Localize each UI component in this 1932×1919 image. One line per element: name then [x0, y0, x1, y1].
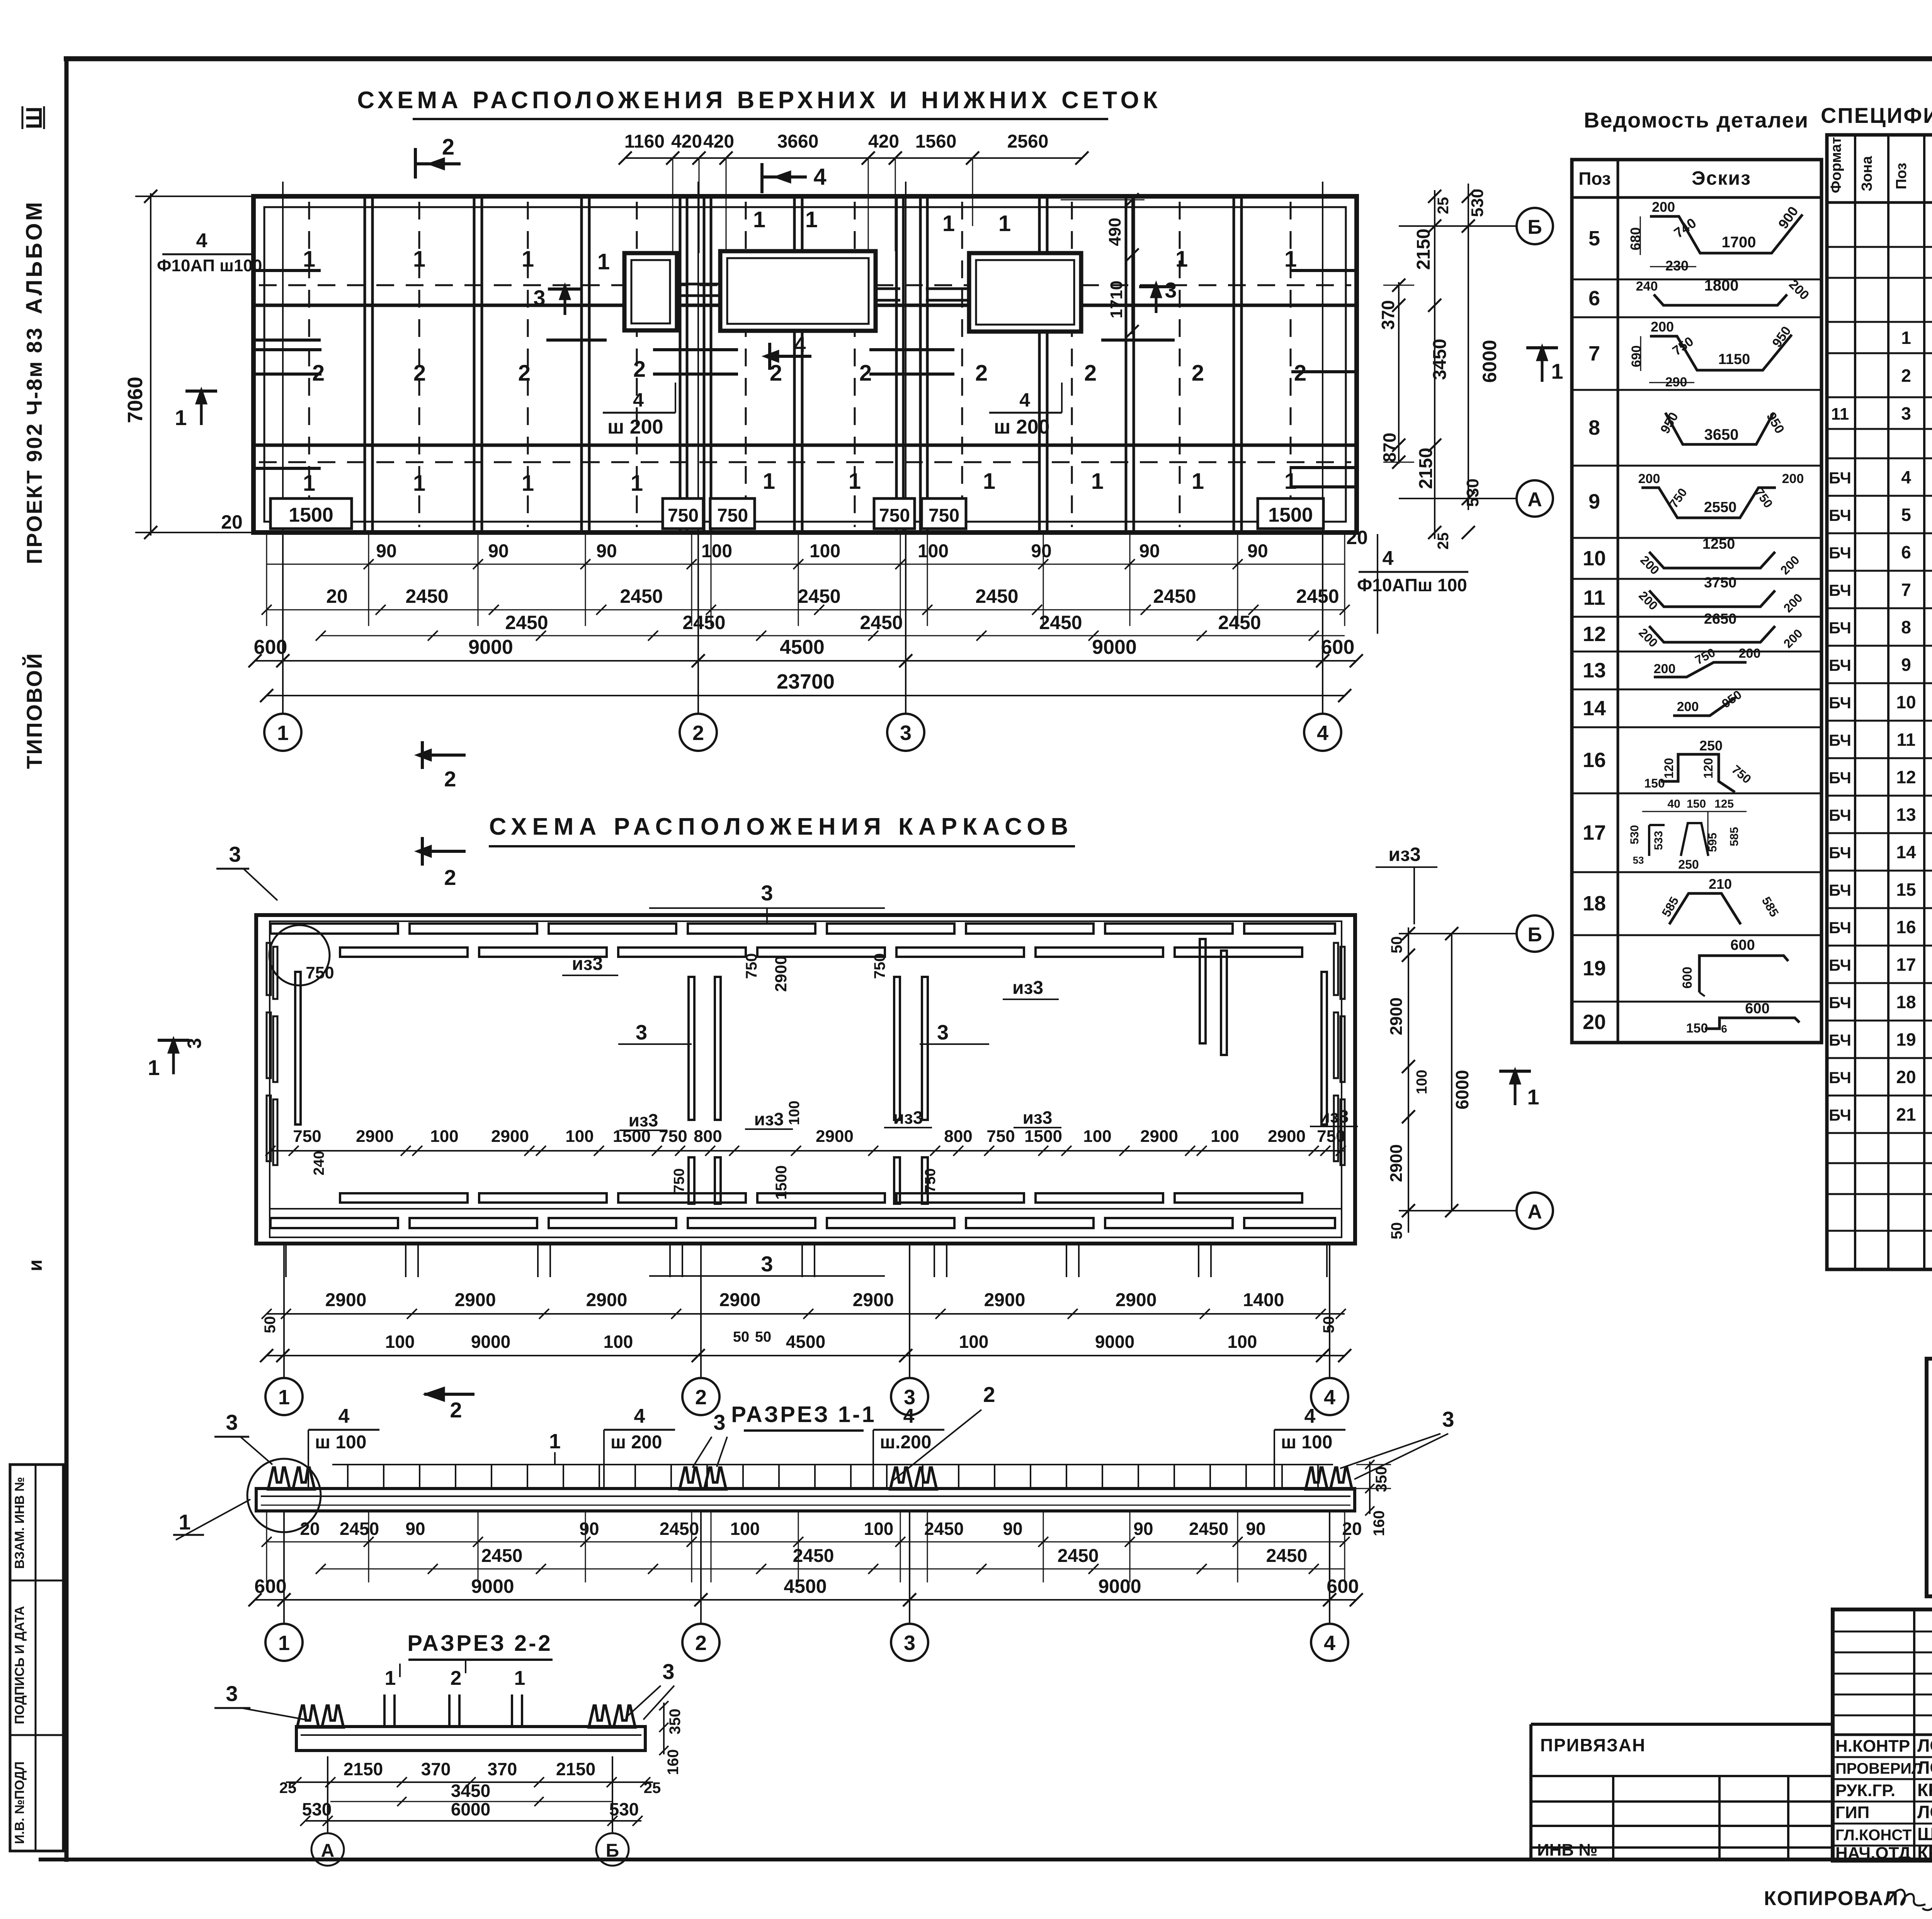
svg-text:1150: 1150 [1718, 351, 1750, 367]
svg-text:90: 90 [488, 541, 509, 561]
svg-text:370: 370 [1378, 300, 1398, 330]
svg-text:2900: 2900 [356, 1127, 394, 1146]
svg-text:2: 2 [1192, 361, 1204, 386]
svg-text:НАЧ.ОТД: НАЧ.ОТД [1835, 1844, 1911, 1863]
svg-text:3: 3 [900, 721, 912, 745]
svg-text:10: 10 [1896, 692, 1916, 712]
svg-text:16: 16 [1583, 749, 1606, 772]
svg-text:Б: Б [606, 1841, 619, 1861]
svg-text:ГИП: ГИП [1835, 1803, 1869, 1822]
svg-text:17: 17 [1896, 954, 1916, 975]
svg-text:90: 90 [405, 1519, 425, 1539]
svg-text:100: 100 [565, 1127, 594, 1146]
svg-text:2900: 2900 [1387, 1144, 1406, 1182]
svg-text:2: 2 [450, 1398, 462, 1422]
svg-text:25: 25 [644, 1779, 661, 1797]
svg-text:90: 90 [376, 541, 396, 561]
svg-text:23700: 23700 [777, 670, 835, 693]
svg-text:870: 870 [1379, 433, 1400, 463]
svg-text:490: 490 [1105, 218, 1124, 246]
svg-text:4: 4 [1383, 547, 1394, 570]
svg-text:1500: 1500 [1024, 1127, 1062, 1146]
svg-text:1: 1 [277, 721, 289, 745]
svg-text:1: 1 [763, 469, 775, 494]
svg-text:Ф10АΠш 100: Ф10АΠш 100 [1357, 575, 1467, 595]
svg-text:1: 1 [1175, 247, 1188, 272]
svg-text:3: 3 [1442, 1407, 1454, 1431]
svg-text:750: 750 [671, 1168, 687, 1193]
svg-text:800: 800 [694, 1127, 722, 1146]
svg-text:ЛОУЦКЕР: ЛОУЦКЕР [1917, 1735, 1932, 1756]
svg-text:ТИПОВОЙ: ТИПОВОЙ [22, 652, 46, 769]
svg-text:2900: 2900 [816, 1127, 854, 1146]
svg-text:1: 1 [148, 1055, 160, 1080]
svg-text:50: 50 [262, 1316, 279, 1334]
svg-text:750: 750 [929, 505, 959, 526]
svg-text:1: 1 [413, 247, 425, 272]
svg-text:2: 2 [451, 1667, 462, 1689]
svg-text:680: 680 [1628, 227, 1643, 250]
svg-text:600: 600 [1745, 1000, 1769, 1017]
svg-text:2450: 2450 [340, 1519, 379, 1539]
svg-text:150: 150 [1644, 776, 1665, 790]
svg-text:СХЕМА РАСПОЛОЖЕНИЯ КАРКАСОВ: СХЕМА РАСПОЛОЖЕНИЯ КАРКАСОВ [489, 813, 1074, 840]
svg-text:100: 100 [604, 1332, 633, 1352]
svg-text:420: 420 [868, 131, 899, 152]
svg-text:БЧ: БЧ [1829, 506, 1851, 524]
svg-text:4: 4 [1019, 389, 1030, 411]
svg-text:3: 3 [761, 881, 773, 905]
svg-text:2560: 2560 [1007, 131, 1049, 152]
svg-text:600: 600 [254, 1575, 286, 1597]
svg-text:2900: 2900 [984, 1290, 1026, 1310]
svg-text:1500: 1500 [773, 1165, 790, 1200]
svg-text:14: 14 [1896, 842, 1916, 862]
svg-text:200: 200 [1739, 646, 1761, 661]
svg-text:1: 1 [1901, 328, 1911, 348]
svg-text:11: 11 [1583, 586, 1605, 609]
svg-text:420: 420 [671, 131, 702, 152]
svg-text:КРАСАВИН: КРАСАВИН [1917, 1842, 1932, 1863]
svg-text:13: 13 [1896, 805, 1916, 825]
svg-text:2900: 2900 [455, 1290, 496, 1310]
svg-text:90: 90 [579, 1519, 599, 1539]
svg-text:Эскиз: Эскиз [1692, 167, 1751, 189]
svg-text:БЧ: БЧ [1829, 1106, 1851, 1124]
svg-text:из3: из3 [1388, 844, 1420, 865]
svg-text:750: 750 [871, 953, 888, 979]
svg-text:2900: 2900 [853, 1290, 894, 1310]
svg-text:ВЗАМ. ИНВ №: ВЗАМ. ИНВ № [12, 1477, 27, 1569]
svg-text:5: 5 [1588, 227, 1600, 250]
svg-text:125: 125 [1714, 798, 1734, 810]
svg-text:2900: 2900 [491, 1127, 529, 1146]
svg-text:БЧ: БЧ [1829, 581, 1851, 599]
svg-text:Формат: Формат [1828, 137, 1844, 193]
svg-text:ИНВ №: ИНВ № [1537, 1841, 1597, 1859]
svg-text:1: 1 [514, 1667, 526, 1689]
svg-text:530: 530 [1463, 478, 1482, 507]
svg-text:200: 200 [1651, 319, 1674, 335]
svg-text:14: 14 [1583, 697, 1606, 720]
svg-text:600: 600 [1680, 967, 1695, 989]
svg-text:600: 600 [254, 636, 287, 658]
svg-text:А: А [1527, 1201, 1542, 1223]
svg-text:3: 3 [713, 1410, 725, 1434]
svg-text:А: А [1527, 488, 1542, 511]
svg-text:5: 5 [1901, 505, 1911, 525]
svg-text:50: 50 [733, 1329, 749, 1345]
svg-text:1: 1 [983, 469, 995, 494]
svg-text:4500: 4500 [780, 636, 825, 658]
svg-text:12: 12 [1583, 623, 1606, 646]
svg-text:750: 750 [922, 1168, 939, 1193]
svg-text:100: 100 [786, 1101, 803, 1125]
svg-text:2: 2 [633, 357, 646, 382]
svg-text:533: 533 [1652, 831, 1665, 850]
svg-text:Б: Б [1527, 924, 1542, 946]
svg-text:1710: 1710 [1107, 281, 1126, 318]
svg-text:2450: 2450 [793, 1546, 834, 1566]
svg-text:БЧ: БЧ [1829, 994, 1851, 1012]
svg-text:ш 200: ш 200 [607, 416, 663, 438]
svg-text:370: 370 [421, 1759, 451, 1779]
svg-text:из3: из3 [754, 1109, 784, 1129]
svg-text:ш 100: ш 100 [315, 1432, 366, 1453]
svg-text:2450: 2450 [1058, 1546, 1099, 1566]
svg-text:1: 1 [385, 1667, 396, 1689]
svg-text:1160: 1160 [624, 131, 665, 152]
svg-text:2: 2 [695, 1631, 707, 1655]
svg-text:3: 3 [533, 286, 545, 310]
svg-text:ПРОВЕРИЛ: ПРОВЕРИЛ [1835, 1760, 1922, 1777]
svg-text:9000: 9000 [1098, 1575, 1141, 1597]
svg-text:Ф10АΠ ш100: Ф10АΠ ш100 [157, 256, 262, 275]
svg-text:Зона: Зона [1859, 156, 1875, 191]
svg-text:2150: 2150 [1413, 229, 1434, 270]
svg-text:2: 2 [442, 134, 454, 160]
svg-text:БЧ: БЧ [1829, 656, 1851, 674]
svg-text:18: 18 [1583, 892, 1606, 915]
svg-text:750: 750 [668, 505, 699, 526]
svg-text:420: 420 [703, 131, 734, 152]
svg-text:БЧ: БЧ [1829, 844, 1851, 862]
svg-text:750: 750 [743, 953, 760, 979]
svg-text:БЧ: БЧ [1829, 806, 1851, 824]
svg-text:3: 3 [904, 1631, 915, 1655]
svg-text:750: 750 [659, 1127, 687, 1146]
svg-text:3: 3 [662, 1659, 674, 1684]
svg-text:595: 595 [1706, 833, 1719, 852]
svg-text:750: 750 [306, 963, 334, 982]
svg-text:1: 1 [753, 207, 765, 232]
svg-text:20: 20 [1346, 527, 1368, 548]
svg-text:3: 3 [937, 1021, 949, 1044]
svg-text:1: 1 [998, 211, 1011, 236]
svg-text:750: 750 [986, 1127, 1015, 1146]
svg-text:БЧ: БЧ [1829, 956, 1851, 974]
svg-text:3750: 3750 [1704, 575, 1737, 591]
svg-text:11: 11 [1897, 730, 1916, 750]
svg-text:из3: из3 [1012, 978, 1043, 998]
svg-text:90: 90 [1031, 541, 1051, 561]
svg-text:4: 4 [1304, 1405, 1316, 1427]
svg-text:160: 160 [1371, 1511, 1388, 1536]
svg-text:2: 2 [413, 361, 426, 386]
svg-text:7: 7 [1901, 580, 1911, 600]
svg-text:3660: 3660 [777, 131, 819, 152]
svg-text:8: 8 [1901, 617, 1911, 637]
svg-text:1560: 1560 [915, 131, 957, 152]
svg-text:90: 90 [1003, 1519, 1022, 1539]
svg-text:Поз: Поз [1578, 168, 1611, 189]
svg-text:2450: 2450 [505, 612, 548, 633]
svg-text:600: 600 [1730, 937, 1755, 953]
svg-text:1400: 1400 [1243, 1290, 1284, 1310]
svg-text:7: 7 [1588, 342, 1600, 365]
svg-text:20: 20 [326, 585, 348, 607]
svg-text:9000: 9000 [1092, 636, 1137, 658]
svg-text:6: 6 [1901, 542, 1911, 562]
svg-text:из3: из3 [1023, 1108, 1053, 1128]
svg-text:11: 11 [1831, 405, 1849, 424]
svg-text:3: 3 [1901, 403, 1911, 424]
svg-text:18: 18 [1896, 992, 1916, 1012]
svg-text:2450: 2450 [682, 612, 725, 633]
svg-text:200: 200 [1677, 699, 1699, 714]
svg-text:600: 600 [1321, 636, 1355, 658]
svg-text:2150: 2150 [556, 1759, 595, 1779]
svg-text:2450: 2450 [1266, 1546, 1308, 1566]
svg-text:1: 1 [549, 1430, 561, 1453]
svg-text:210: 210 [1709, 876, 1732, 892]
svg-text:Ш: Ш [22, 107, 47, 129]
svg-text:БЧ: БЧ [1829, 881, 1851, 899]
svg-text:из3: из3 [572, 954, 603, 974]
svg-text:25: 25 [1435, 197, 1452, 214]
svg-text:1: 1 [942, 211, 955, 236]
svg-text:3: 3 [1165, 278, 1177, 302]
svg-text:2150: 2150 [344, 1759, 383, 1779]
svg-text:1: 1 [522, 247, 534, 272]
svg-text:4500: 4500 [784, 1575, 827, 1597]
svg-text:4: 4 [813, 164, 827, 190]
svg-text:2900: 2900 [586, 1290, 628, 1310]
svg-text:1: 1 [413, 471, 425, 496]
svg-text:4: 4 [1324, 1386, 1335, 1409]
svg-text:1500: 1500 [1268, 504, 1313, 526]
svg-text:750: 750 [1317, 1127, 1345, 1146]
svg-text:1700: 1700 [1722, 234, 1756, 251]
svg-text:20: 20 [1896, 1067, 1916, 1087]
svg-text:250: 250 [1678, 857, 1699, 871]
svg-text:4500: 4500 [786, 1332, 825, 1352]
svg-text:4: 4 [1901, 467, 1911, 487]
svg-text:120: 120 [1662, 758, 1676, 778]
svg-text:25: 25 [1435, 532, 1452, 550]
svg-text:240: 240 [1636, 279, 1658, 294]
svg-text:4: 4 [794, 332, 806, 357]
svg-text:4: 4 [1317, 721, 1328, 745]
svg-text:20: 20 [221, 511, 243, 533]
svg-text:1: 1 [849, 469, 861, 494]
svg-text:20: 20 [1342, 1519, 1362, 1539]
svg-text:2450: 2450 [975, 585, 1018, 607]
svg-text:4: 4 [633, 389, 644, 411]
svg-text:2: 2 [1084, 361, 1097, 386]
svg-text:2550: 2550 [1704, 499, 1737, 515]
svg-text:100: 100 [1228, 1332, 1257, 1352]
svg-text:2900: 2900 [1140, 1127, 1178, 1146]
svg-text:250: 250 [1699, 738, 1723, 754]
svg-text:КРАСНОВА: КРАСНОВА [1917, 1780, 1932, 1800]
svg-text:ПРОЕКТ 902 Ч-8м 83: ПРОЕКТ 902 Ч-8м 83 [22, 327, 46, 564]
svg-text:690: 690 [1629, 345, 1644, 367]
svg-text:2900: 2900 [1116, 1290, 1157, 1310]
svg-text:БЧ: БЧ [1829, 469, 1851, 487]
svg-text:2: 2 [518, 361, 531, 386]
svg-text:1: 1 [303, 471, 315, 496]
svg-text:3450: 3450 [451, 1781, 490, 1801]
svg-text:2900: 2900 [772, 956, 790, 992]
svg-text:2450: 2450 [860, 612, 903, 633]
svg-text:530: 530 [609, 1799, 639, 1819]
svg-text:6000: 6000 [1479, 340, 1500, 383]
svg-text:200: 200 [1654, 662, 1676, 676]
svg-text:И.В. №ПОДЛ: И.В. №ПОДЛ [12, 1761, 27, 1844]
svg-text:19: 19 [1896, 1029, 1916, 1050]
svg-text:200: 200 [1638, 471, 1660, 486]
svg-text:БЧ: БЧ [1829, 694, 1851, 712]
svg-text:800: 800 [944, 1127, 972, 1146]
svg-text:50: 50 [1388, 936, 1405, 954]
svg-text:150: 150 [1687, 798, 1706, 810]
svg-text:БЧ: БЧ [1829, 919, 1851, 937]
svg-text:РАЗРЕЗ 2-2: РАЗРЕЗ 2-2 [407, 1631, 552, 1656]
svg-text:100: 100 [430, 1127, 458, 1146]
svg-text:9: 9 [1901, 655, 1911, 675]
svg-text:2900: 2900 [1387, 997, 1406, 1035]
svg-text:1250: 1250 [1702, 536, 1735, 552]
svg-text:100: 100 [918, 541, 949, 561]
svg-text:2: 2 [692, 721, 704, 745]
svg-text:6: 6 [1721, 1023, 1727, 1035]
svg-text:9000: 9000 [1095, 1332, 1134, 1352]
svg-text:1: 1 [597, 249, 610, 274]
svg-text:ш 200: ш 200 [611, 1432, 662, 1453]
svg-text:2150: 2150 [1416, 448, 1436, 489]
svg-text:6000: 6000 [451, 1799, 490, 1819]
svg-text:100: 100 [385, 1332, 415, 1352]
svg-text:ПОДПИСЬ И ДАТА: ПОДПИСЬ И ДАТА [12, 1606, 27, 1724]
svg-text:КОПИРОВАЛ: КОПИРОВАЛ [1764, 1887, 1899, 1910]
svg-text:Поз: Поз [1893, 163, 1910, 189]
svg-text:2450: 2450 [1218, 612, 1261, 633]
svg-text:1: 1 [1284, 247, 1297, 272]
svg-text:2900: 2900 [325, 1290, 367, 1310]
svg-text:2: 2 [695, 1386, 707, 1409]
svg-text:1: 1 [278, 1631, 290, 1655]
svg-text:1800: 1800 [1704, 277, 1739, 294]
svg-text:2650: 2650 [1704, 611, 1737, 627]
svg-text:25: 25 [279, 1779, 297, 1797]
svg-text:2: 2 [975, 361, 988, 386]
svg-text:1: 1 [1551, 359, 1563, 383]
svg-text:200: 200 [1782, 471, 1804, 486]
svg-text:1: 1 [1091, 469, 1104, 494]
svg-text:ПРИВЯЗАН: ПРИВЯЗАН [1540, 1735, 1646, 1755]
svg-text:1: 1 [179, 1510, 190, 1534]
svg-text:БЧ: БЧ [1829, 1068, 1851, 1087]
svg-text:БЧ: БЧ [1829, 544, 1851, 562]
svg-text:100: 100 [1414, 1070, 1430, 1094]
svg-text:1: 1 [1284, 469, 1297, 494]
svg-text:БЧ: БЧ [1829, 769, 1851, 787]
svg-text:4: 4 [338, 1405, 350, 1427]
svg-text:2900: 2900 [719, 1290, 761, 1310]
svg-text:4: 4 [1324, 1631, 1335, 1655]
svg-text:ш 200: ш 200 [994, 416, 1050, 438]
svg-text:2450: 2450 [924, 1519, 964, 1539]
svg-text:2450: 2450 [798, 585, 840, 607]
svg-text:1: 1 [175, 405, 187, 430]
svg-text:150: 150 [1686, 1021, 1708, 1036]
svg-text:230: 230 [1665, 258, 1689, 274]
svg-text:2: 2 [444, 865, 456, 890]
svg-text:2450: 2450 [1296, 585, 1339, 607]
svg-text:1500: 1500 [613, 1127, 651, 1146]
svg-text:ЛОУЦКЕР: ЛОУЦКЕР [1917, 1757, 1932, 1778]
svg-text:9: 9 [1588, 490, 1600, 513]
svg-text:1: 1 [522, 471, 534, 496]
svg-text:200: 200 [1652, 199, 1675, 215]
svg-text:и: и [24, 1259, 46, 1271]
svg-text:ЛОУЦКЕР: ЛОУЦКЕР [1917, 1802, 1932, 1822]
svg-text:100: 100 [730, 1519, 760, 1539]
svg-text:1: 1 [278, 1386, 290, 1409]
svg-text:4: 4 [903, 1405, 915, 1427]
svg-text:ГЛ.КОНСТ: ГЛ.КОНСТ [1835, 1827, 1912, 1844]
svg-text:160: 160 [665, 1749, 682, 1775]
svg-text:90: 90 [1133, 1519, 1153, 1539]
svg-text:2450: 2450 [1153, 585, 1196, 607]
svg-text:1: 1 [1192, 469, 1204, 494]
svg-text:100: 100 [959, 1332, 989, 1352]
svg-text:21: 21 [1896, 1104, 1916, 1125]
svg-text:370: 370 [488, 1759, 517, 1779]
svg-text:53: 53 [1633, 854, 1644, 866]
svg-text:ШАПИРО: ШАПИРО [1917, 1824, 1932, 1844]
svg-text:100: 100 [810, 541, 840, 561]
svg-text:БЧ: БЧ [1829, 619, 1851, 637]
svg-text:2450: 2450 [481, 1546, 523, 1566]
svg-text:50: 50 [755, 1329, 771, 1345]
svg-text:3: 3 [636, 1021, 647, 1044]
svg-text:ш 100: ш 100 [1281, 1432, 1332, 1453]
svg-text:4: 4 [196, 230, 207, 252]
svg-text:2450: 2450 [1039, 612, 1082, 633]
svg-text:12: 12 [1896, 767, 1916, 787]
svg-text:8: 8 [1588, 416, 1600, 439]
svg-text:120: 120 [1701, 758, 1715, 778]
svg-text:3: 3 [226, 1410, 238, 1434]
svg-text:350: 350 [667, 1709, 684, 1735]
svg-text:Ведомость деталеи: Ведомость деталеи [1584, 108, 1809, 132]
svg-text:1500: 1500 [289, 504, 333, 526]
svg-text:750: 750 [717, 505, 748, 526]
svg-text:СПЕЦИФИКАЦИЯ К СХЕМАМ РАСПОЛО: СПЕЦИФИКАЦИЯ К СХЕМАМ РАСПОЛОЖЕНИЯ АРМАТ… [1821, 103, 1932, 128]
svg-text:4: 4 [634, 1405, 645, 1427]
